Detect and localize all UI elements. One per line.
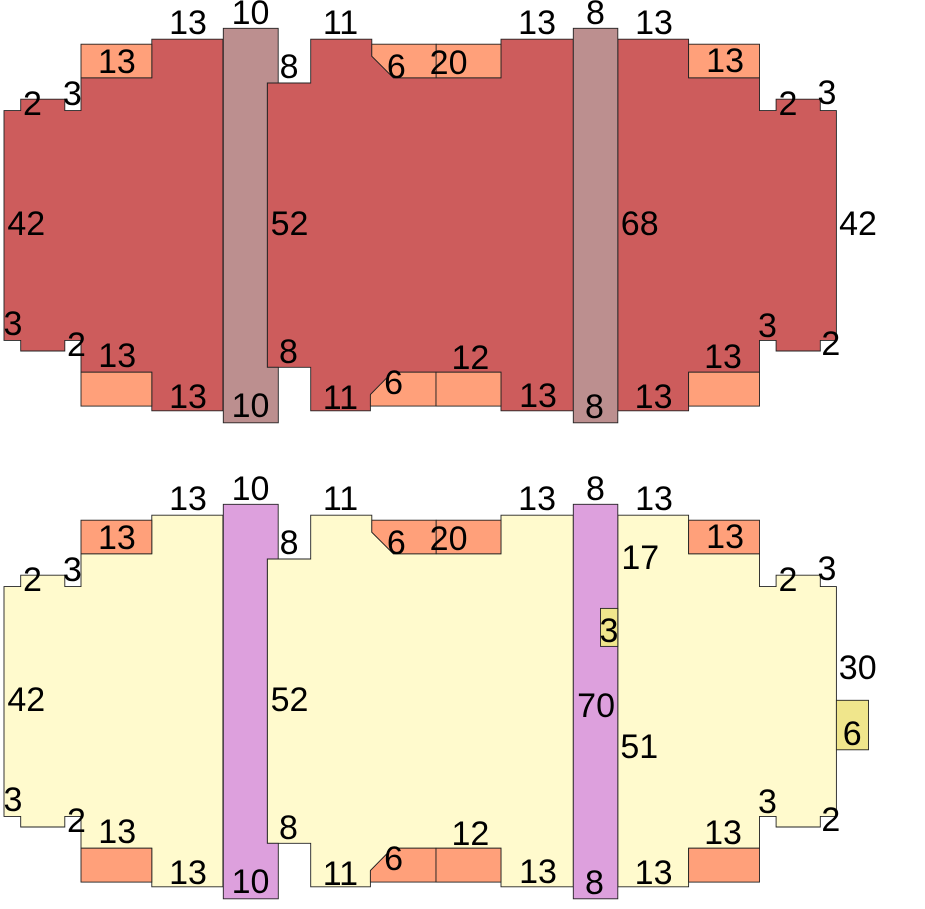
svg-text:13: 13	[98, 337, 136, 375]
svg-text:3: 3	[758, 783, 777, 821]
svg-text:10: 10	[232, 0, 270, 32]
svg-text:6: 6	[387, 524, 406, 562]
svg-text:13: 13	[635, 378, 673, 416]
svg-text:13: 13	[704, 338, 742, 376]
svg-text:3: 3	[818, 74, 837, 112]
svg-text:20: 20	[430, 520, 468, 558]
svg-text:3: 3	[4, 305, 23, 343]
svg-text:2: 2	[779, 85, 798, 123]
svg-text:13: 13	[635, 4, 673, 42]
svg-text:42: 42	[7, 205, 45, 243]
svg-text:13: 13	[706, 518, 744, 556]
svg-text:13: 13	[518, 480, 556, 518]
svg-text:8: 8	[279, 809, 298, 847]
svg-text:2: 2	[23, 85, 42, 123]
svg-text:3: 3	[818, 550, 837, 588]
svg-text:13: 13	[169, 480, 207, 518]
svg-text:3: 3	[63, 75, 82, 113]
svg-text:52: 52	[271, 681, 309, 719]
svg-text:6: 6	[387, 48, 406, 86]
svg-text:13: 13	[518, 4, 556, 42]
svg-text:2: 2	[821, 801, 840, 839]
svg-text:10: 10	[232, 470, 270, 508]
svg-text:8: 8	[280, 48, 299, 86]
svg-text:8: 8	[585, 864, 604, 902]
svg-text:8: 8	[586, 0, 605, 32]
svg-text:51: 51	[620, 728, 658, 766]
svg-text:42: 42	[7, 681, 45, 719]
svg-text:13: 13	[519, 853, 557, 891]
svg-text:13: 13	[98, 813, 136, 851]
svg-text:3: 3	[758, 307, 777, 345]
svg-text:3: 3	[63, 551, 82, 589]
svg-text:13: 13	[169, 4, 207, 42]
svg-text:2: 2	[67, 802, 86, 840]
svg-text:42: 42	[839, 205, 877, 243]
svg-text:11: 11	[323, 480, 358, 518]
svg-text:13: 13	[169, 854, 207, 892]
svg-text:13: 13	[98, 43, 136, 81]
svg-text:52: 52	[271, 205, 309, 243]
svg-text:6: 6	[384, 364, 403, 402]
svg-text:13: 13	[704, 814, 742, 852]
svg-text:8: 8	[280, 524, 299, 562]
svg-text:2: 2	[23, 561, 42, 599]
svg-text:20: 20	[430, 44, 468, 82]
svg-text:13: 13	[98, 519, 136, 557]
svg-text:6: 6	[384, 840, 403, 878]
svg-text:6: 6	[843, 715, 862, 753]
svg-text:13: 13	[635, 480, 673, 518]
svg-text:11: 11	[323, 379, 358, 417]
svg-text:10: 10	[232, 387, 270, 425]
svg-text:70: 70	[577, 687, 615, 725]
svg-text:17: 17	[621, 539, 659, 577]
svg-text:3: 3	[599, 612, 618, 650]
svg-text:11: 11	[323, 4, 358, 42]
svg-text:8: 8	[279, 333, 298, 371]
svg-text:12: 12	[451, 339, 489, 377]
svg-text:13: 13	[706, 42, 744, 80]
svg-text:68: 68	[621, 205, 659, 243]
svg-text:8: 8	[585, 388, 604, 426]
svg-text:30: 30	[839, 649, 877, 687]
svg-text:13: 13	[635, 854, 673, 892]
svg-text:10: 10	[232, 863, 270, 901]
svg-text:13: 13	[169, 378, 207, 416]
svg-text:8: 8	[586, 470, 605, 508]
svg-text:2: 2	[821, 325, 840, 363]
svg-text:3: 3	[4, 781, 23, 819]
svg-text:11: 11	[323, 855, 358, 893]
svg-text:12: 12	[451, 815, 489, 853]
svg-text:2: 2	[67, 326, 86, 364]
svg-text:13: 13	[519, 377, 557, 415]
svg-text:2: 2	[779, 561, 798, 599]
